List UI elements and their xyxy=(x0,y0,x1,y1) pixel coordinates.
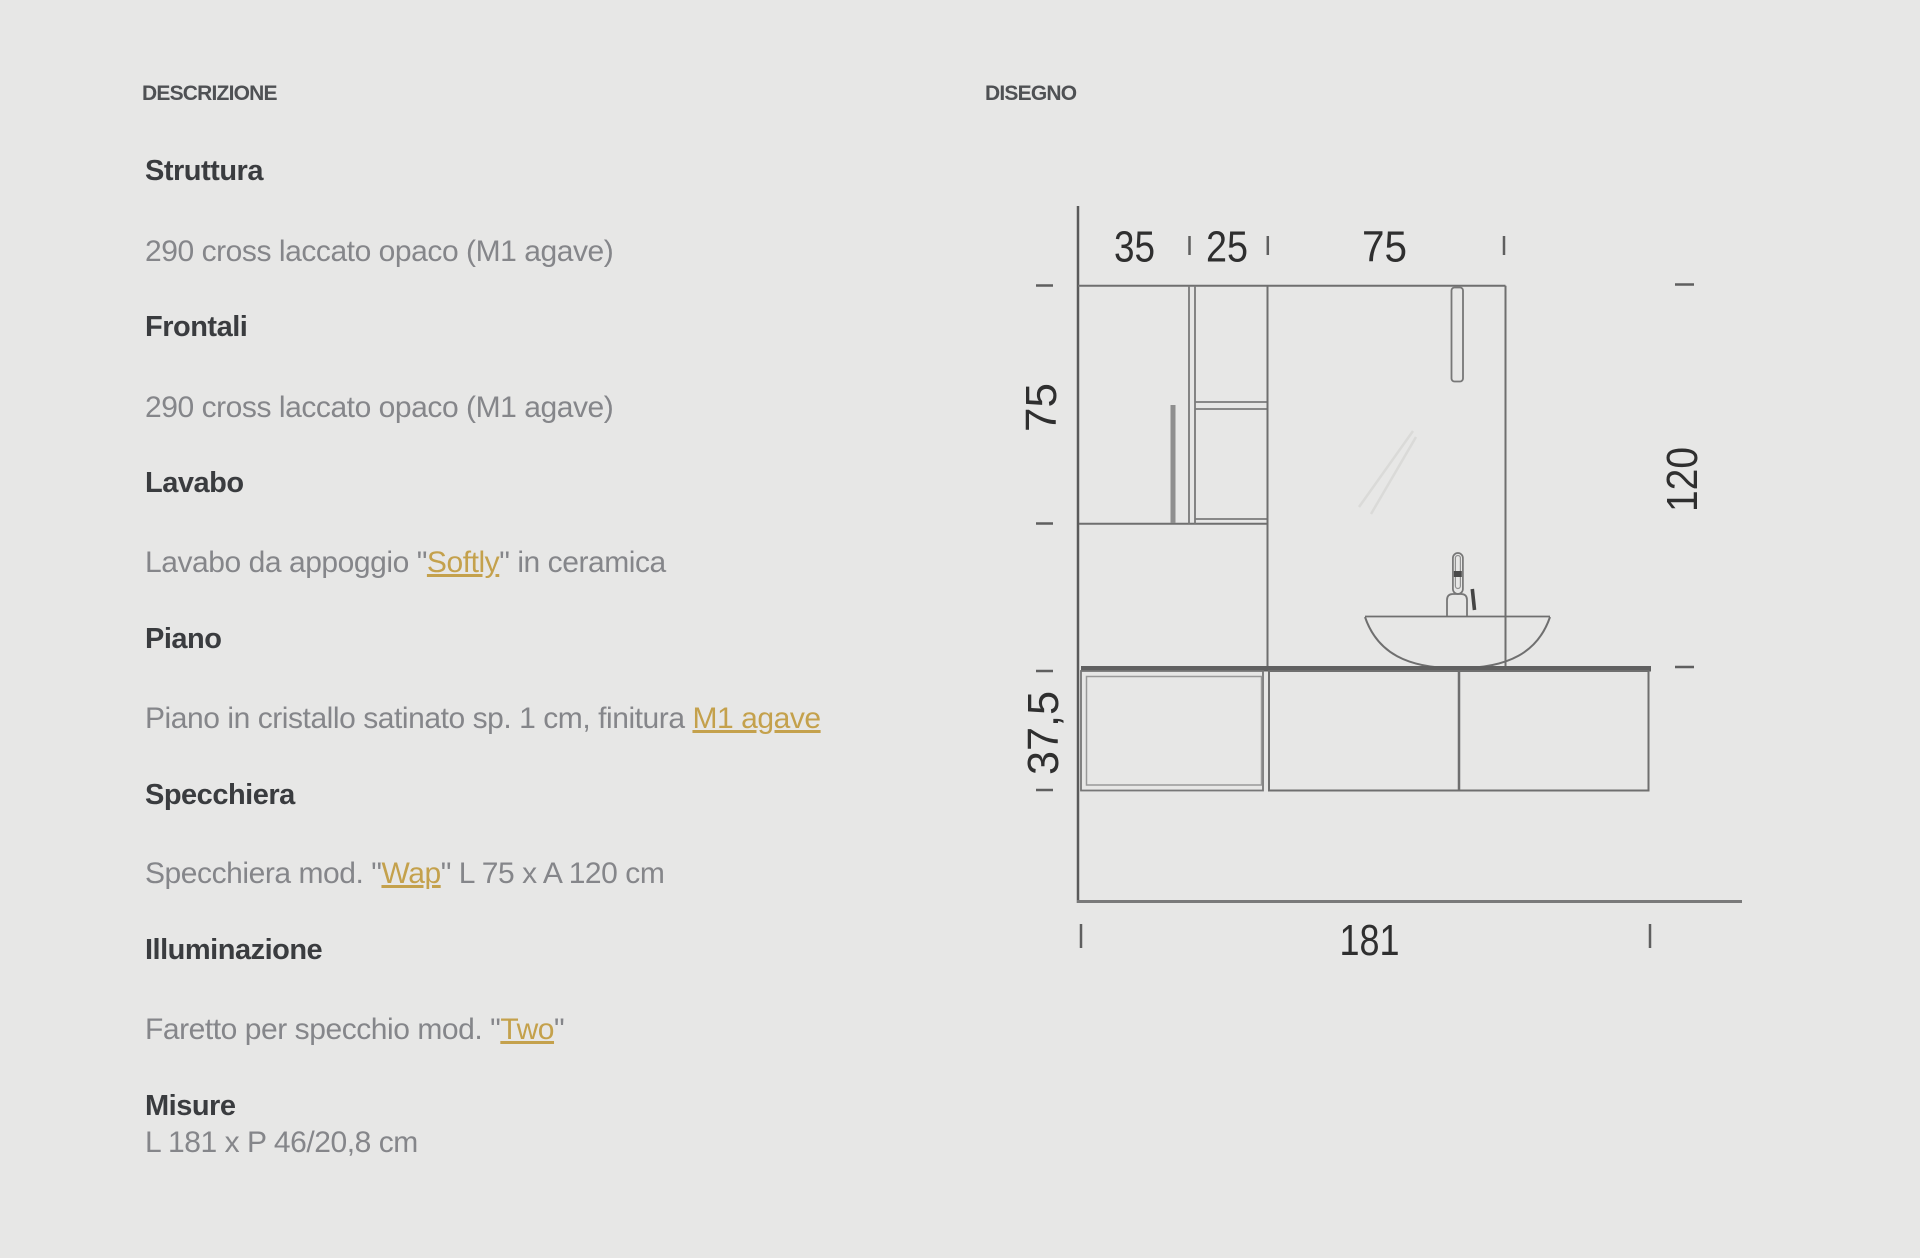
svg-text:120: 120 xyxy=(1658,447,1707,512)
svg-text:37,5: 37,5 xyxy=(1019,691,1068,775)
svg-text:25: 25 xyxy=(1206,223,1248,272)
svg-text:181: 181 xyxy=(1340,916,1400,965)
svg-text:75: 75 xyxy=(1362,223,1407,272)
svg-text:75: 75 xyxy=(1017,383,1066,432)
svg-text:35: 35 xyxy=(1114,223,1155,272)
